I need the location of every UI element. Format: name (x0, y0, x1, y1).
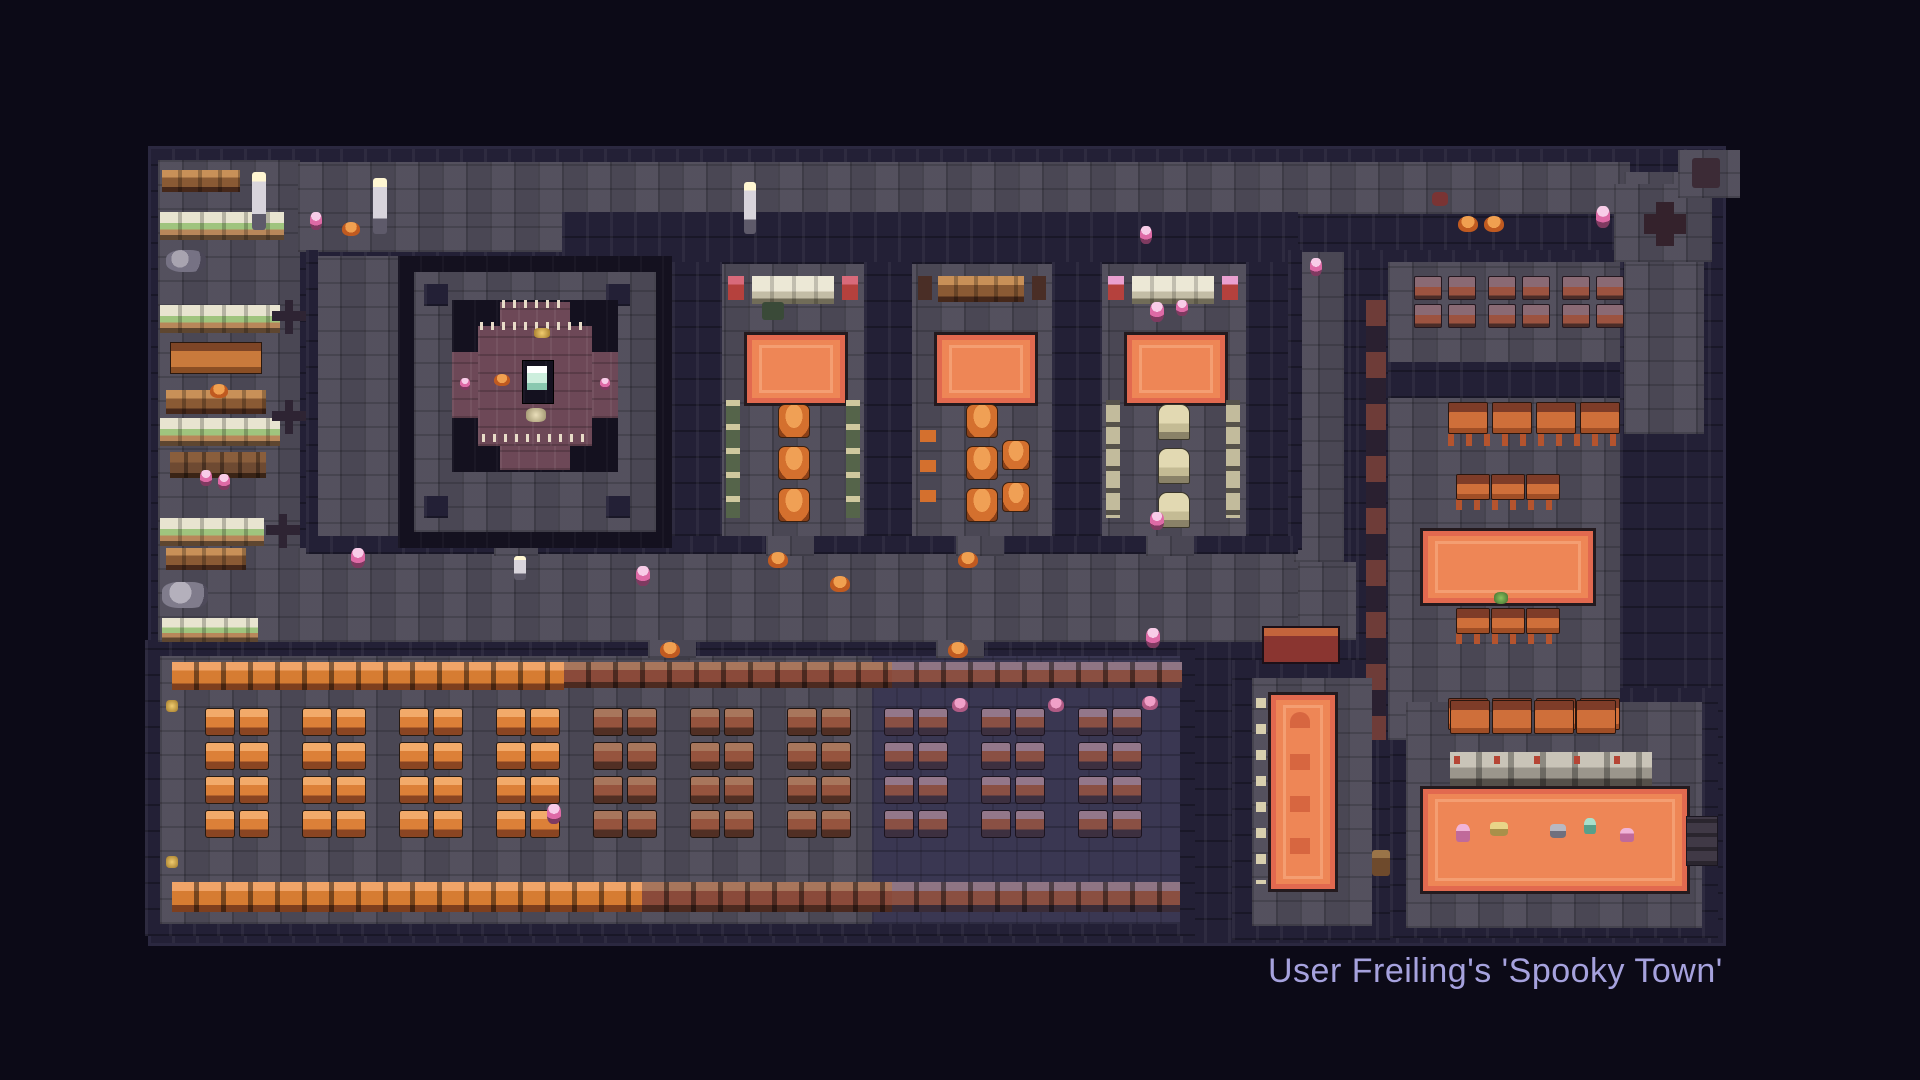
candle-wall-strip (1256, 698, 1266, 884)
dining-west-pillars (1366, 300, 1386, 740)
table-row (1576, 700, 1616, 734)
table-row (1526, 474, 1560, 500)
pink-candle (1140, 226, 1152, 244)
chest-cluster (593, 742, 623, 770)
chest-cluster (787, 708, 817, 736)
chest-cluster (627, 742, 657, 770)
chest-cluster (787, 742, 817, 770)
sink-basin (162, 582, 208, 608)
shop-counter (160, 305, 280, 333)
chest-cluster (690, 810, 720, 838)
chest-row-south (642, 882, 892, 912)
tombstone-column (1158, 448, 1190, 484)
ritual1-rug (744, 332, 848, 406)
ritual1-side-shelf (846, 400, 860, 518)
chest-cluster (1015, 776, 1045, 804)
chest-cluster (627, 708, 657, 736)
rug-figure (1456, 824, 1470, 842)
brazier-post (272, 400, 306, 434)
pumpkin-chair-column (778, 488, 810, 522)
chest-cluster (884, 742, 914, 770)
bed-pair-group (1414, 304, 1442, 328)
chest-cluster (302, 742, 332, 770)
pumpkin-chair-column (1002, 482, 1030, 512)
rug-border-pattern (1139, 345, 1213, 393)
chest-row-north (892, 662, 1182, 688)
table-row (1492, 700, 1532, 734)
chest-cluster (530, 742, 560, 770)
shop-counter (160, 518, 264, 546)
pink-candle (547, 804, 561, 824)
chest-row-south (892, 882, 1180, 912)
ritual-wall (1246, 262, 1288, 536)
ritual3-rug (1124, 332, 1228, 406)
chest-cluster (724, 776, 754, 804)
tombstone-column (1158, 404, 1190, 440)
chest-cluster (399, 708, 429, 736)
pink-pumpkin (952, 698, 968, 712)
chest-cluster (205, 742, 235, 770)
ritual1-corner-item (842, 276, 858, 300)
shop-counter (160, 418, 280, 446)
pink-candle (1146, 628, 1160, 648)
chest-cluster (821, 776, 851, 804)
chest-cluster (530, 776, 560, 804)
ritual2-corner-post (918, 276, 932, 300)
chest-cluster (1112, 810, 1142, 838)
rug-figure (1620, 828, 1634, 842)
candle-row (482, 434, 588, 442)
compound-east-wall (1288, 250, 1302, 550)
chest-cluster (918, 776, 948, 804)
chest-cluster (884, 776, 914, 804)
chest-cluster (1078, 810, 1108, 838)
table-row (1448, 402, 1488, 434)
rug-figure (1490, 822, 1508, 836)
bed-pair-group (1522, 304, 1550, 328)
chest-cluster (433, 810, 463, 838)
ritual3-side-shelf (1226, 400, 1240, 518)
bed-pair-group (1562, 304, 1590, 328)
chest-row-north (172, 662, 564, 690)
chest-cluster (884, 708, 914, 736)
altar-side-candle (460, 378, 470, 390)
pink-candle (1150, 302, 1164, 322)
altar-pillar (424, 496, 448, 518)
chest-cluster (496, 776, 526, 804)
table-row (1491, 474, 1525, 500)
bed-pair-group (1522, 276, 1550, 300)
cream-item (526, 408, 546, 422)
rug-figure (1550, 824, 1566, 838)
pumpkin-chair-column (1002, 440, 1030, 470)
shop-shelf (166, 548, 246, 570)
chest-row-north (564, 662, 892, 688)
pumpkin (1458, 216, 1478, 232)
chest-cluster (787, 776, 817, 804)
altar-platform-arm-south (500, 446, 570, 470)
table-row (1456, 608, 1490, 634)
chest-cluster (1078, 776, 1108, 804)
shop-counter (162, 618, 258, 642)
chest-cluster (918, 708, 948, 736)
pumpkin (210, 384, 228, 398)
altar-side-candle (600, 378, 610, 390)
chest-cluster (496, 742, 526, 770)
ritual1-side-shelf (726, 400, 740, 518)
chest-cluster (1112, 708, 1142, 736)
ritual2-rug (934, 332, 1038, 406)
pumpkin (768, 552, 788, 568)
corner-nook-item (1692, 158, 1720, 188)
chest-cluster (724, 708, 754, 736)
rug-border-pattern (759, 345, 833, 393)
pink-candle (636, 566, 650, 586)
chest-cluster (1112, 776, 1142, 804)
dining-rug (1420, 528, 1596, 606)
rug-figure (1584, 818, 1596, 834)
door-post (1372, 850, 1390, 876)
ritual-wall (672, 262, 722, 536)
table-row (1580, 402, 1620, 434)
torch (514, 556, 526, 580)
table-row (1450, 700, 1490, 734)
rug-medallions (1290, 712, 1310, 870)
shop-shelf (162, 170, 240, 192)
chest-cluster (239, 776, 269, 804)
hanging-sign (1262, 626, 1340, 664)
chest-cluster (690, 776, 720, 804)
pumpkin-chair-column (778, 446, 810, 480)
ritual3-bed-counter (1132, 276, 1214, 304)
table-row (1492, 402, 1532, 434)
ritual2-shelf (938, 276, 1024, 302)
rug-border-pattern (949, 345, 1023, 393)
brazier-post (272, 300, 306, 334)
chest-cluster (821, 708, 851, 736)
pink-candle (310, 212, 322, 230)
chest-cluster (205, 708, 235, 736)
top-path-left (298, 214, 562, 252)
pumpkin (1484, 216, 1504, 232)
rug-border-pattern (1435, 541, 1581, 593)
chest-cluster (399, 810, 429, 838)
ritual2-corner-post (1032, 276, 1046, 300)
pink-candle (218, 474, 230, 490)
table-legs-row (1448, 434, 1618, 446)
chest-cluster (1078, 708, 1108, 736)
chest-row-south (172, 882, 642, 912)
table-row (1491, 608, 1525, 634)
chest-cluster (302, 776, 332, 804)
torch (252, 172, 266, 230)
map-caption: User Freiling's 'Spooky Town' (1268, 952, 1828, 991)
chest-cluster (627, 810, 657, 838)
chest-cluster (496, 810, 526, 838)
chest-cluster (724, 810, 754, 838)
chest-cluster (496, 708, 526, 736)
altar-offering (494, 374, 510, 386)
pumpkin (342, 222, 360, 236)
chest-cluster (690, 708, 720, 736)
chest-cluster (336, 810, 366, 838)
counter-items (1454, 756, 1648, 764)
bed-pair-group (1448, 304, 1476, 328)
compound-west-wall (306, 250, 318, 550)
rock-pile (166, 250, 206, 272)
pink-candle (1150, 512, 1164, 530)
gold-item (166, 856, 178, 868)
pumpkin-chair-column (778, 404, 810, 438)
pumpkin-chair-column (966, 446, 998, 480)
altar-pillar (424, 284, 448, 306)
chest-cluster (787, 810, 817, 838)
pink-candle (1596, 206, 1610, 228)
maroon-item (1432, 192, 1448, 206)
chest-cluster (399, 776, 429, 804)
chest-cluster (821, 810, 851, 838)
bed-pair-group (1488, 304, 1516, 328)
chest-cluster (593, 708, 623, 736)
chest-cluster (336, 708, 366, 736)
chest-cluster (981, 708, 1011, 736)
door-gap (1146, 536, 1194, 556)
table-row (1456, 474, 1490, 500)
ritual3-corner-item (1108, 276, 1124, 300)
gold-item (166, 700, 178, 712)
torch (373, 178, 387, 234)
keg-row (170, 452, 266, 478)
ritual1-green-item (762, 302, 784, 320)
ritual2-pumpkin-strip (920, 430, 936, 520)
dark-cabinet (1686, 816, 1718, 866)
chest-cluster (239, 708, 269, 736)
chest-cluster (1015, 708, 1045, 736)
chest-cluster (433, 742, 463, 770)
pink-candle (200, 470, 212, 486)
rug-border-pattern (1435, 799, 1675, 881)
chest-cluster (530, 708, 560, 736)
chest-cluster (239, 742, 269, 770)
chest-cluster (884, 810, 914, 838)
pink-candle (1310, 258, 1322, 276)
chest-cluster (336, 742, 366, 770)
altar-pillar (606, 496, 630, 518)
chest-cluster (239, 810, 269, 838)
gold-item (534, 328, 550, 338)
chest-cluster (399, 742, 429, 770)
pumpkin (948, 642, 968, 658)
bed-pair-group (1414, 276, 1442, 300)
chest-cluster (302, 708, 332, 736)
chest-cluster (433, 708, 463, 736)
ritual-wall (864, 262, 912, 536)
chest-cluster (1015, 742, 1045, 770)
ritual-wall (1052, 262, 1102, 536)
pink-pumpkin (1142, 696, 1158, 710)
chest-cluster (1078, 742, 1108, 770)
ritual1-corner-item (728, 276, 744, 300)
torch (744, 182, 756, 234)
chest-cluster (336, 776, 366, 804)
chest-cluster (690, 742, 720, 770)
pumpkin (830, 576, 850, 592)
right-wing-divider (1388, 362, 1620, 398)
pink-pumpkin (1048, 698, 1064, 712)
table-row (1536, 402, 1576, 434)
top-path (298, 162, 1630, 214)
chest-cluster (981, 810, 1011, 838)
chest-cluster (981, 742, 1011, 770)
bed-pair-group (1488, 276, 1516, 300)
pink-candle (1176, 300, 1188, 316)
bed-pair-group (1596, 276, 1624, 300)
bed-pair-group (1596, 304, 1624, 328)
ritual3-side-shelf (1106, 400, 1120, 518)
chest-cluster (593, 776, 623, 804)
chest-cluster (433, 776, 463, 804)
pumpkin-chair-column (966, 488, 998, 522)
chest-cluster (1112, 742, 1142, 770)
ritual3-corner-item (1222, 276, 1238, 300)
chest-cluster (1015, 810, 1045, 838)
shop-table (170, 342, 262, 374)
chest-cluster (302, 810, 332, 838)
brazier-post (266, 514, 300, 548)
chest-cluster (205, 776, 235, 804)
chest-cluster (627, 776, 657, 804)
bed-pair-group (1448, 276, 1476, 300)
pumpkin (958, 552, 978, 568)
pumpkin-chair-column (966, 404, 998, 438)
table-row (1534, 700, 1574, 734)
bed-pair-group (1562, 276, 1590, 300)
chest-cluster (593, 810, 623, 838)
candle-row (502, 300, 568, 308)
chest-cluster (918, 810, 948, 838)
shrine-cross-icon (1644, 214, 1686, 234)
ritual1-bed-counter (752, 276, 834, 304)
compound-north-wall (562, 212, 1298, 264)
chest-cluster (205, 810, 235, 838)
altar-glow-crystal (527, 366, 547, 390)
chest-cluster (918, 742, 948, 770)
chest-cluster (821, 742, 851, 770)
pink-candle (351, 548, 365, 568)
green-plant (1494, 592, 1508, 604)
table-row (1526, 608, 1560, 634)
chest-cluster (981, 776, 1011, 804)
chest-cluster (724, 742, 754, 770)
pumpkin (660, 642, 680, 658)
